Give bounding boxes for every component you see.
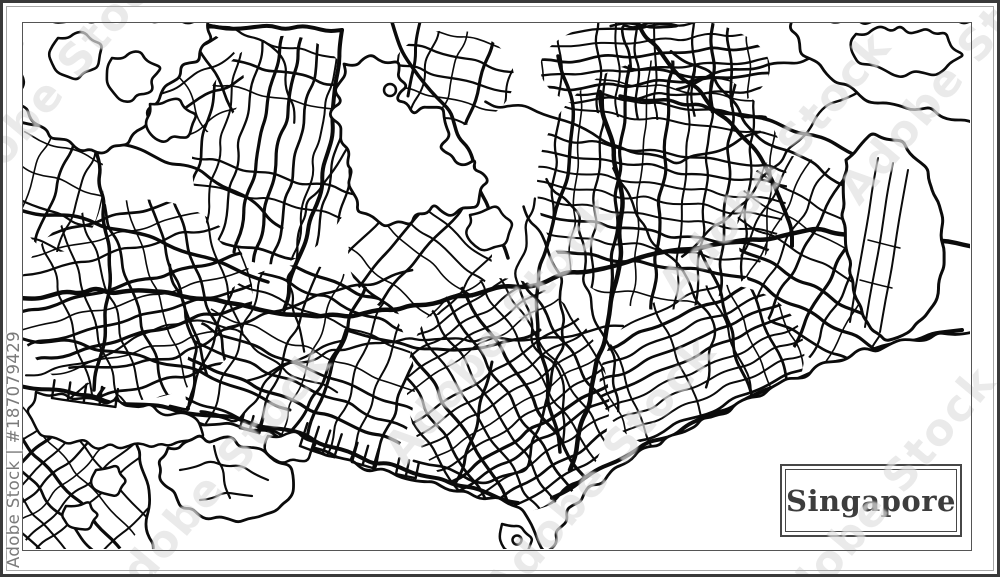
stock-image-preview: Adobe Stock Adobe Stock Adobe Stock Adob… bbox=[0, 0, 1000, 577]
adobe-stock-id-watermark: Adobe Stock | #187079429 bbox=[4, 331, 23, 568]
map-title-inner-border: Singapore bbox=[785, 469, 957, 532]
map-title-box: Singapore bbox=[780, 464, 962, 537]
map-title: Singapore bbox=[786, 484, 956, 518]
